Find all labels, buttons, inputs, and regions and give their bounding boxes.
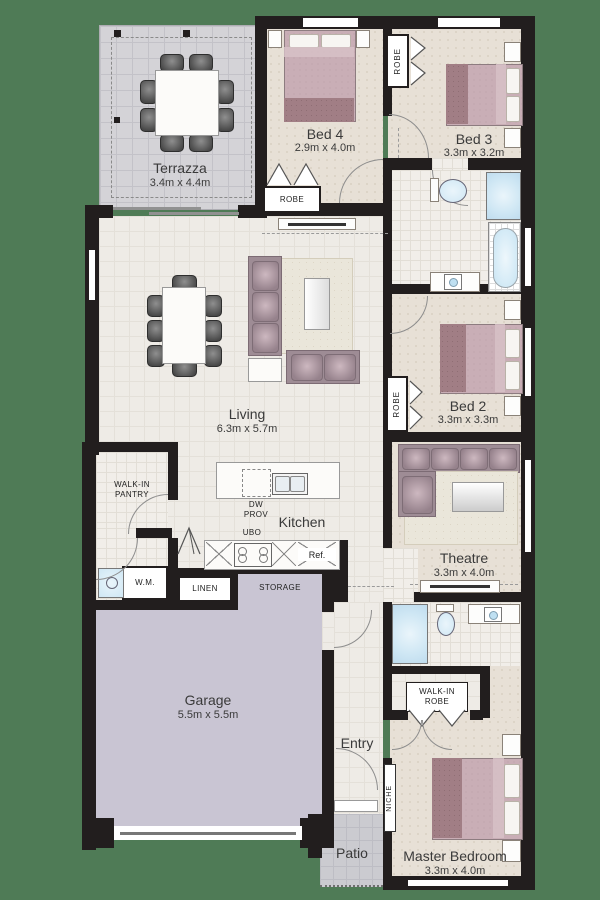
living-dims: 6.3m x 5.7m bbox=[217, 423, 278, 435]
window bbox=[408, 878, 508, 888]
tv bbox=[430, 585, 490, 588]
window bbox=[438, 16, 500, 29]
sofa bbox=[248, 256, 282, 356]
vanity-basin bbox=[484, 607, 502, 622]
window bbox=[523, 460, 533, 552]
wall bbox=[82, 445, 96, 850]
bed4-dims: 2.9m x 4.0m bbox=[295, 142, 356, 154]
sliding-door bbox=[149, 212, 239, 215]
sliding-door bbox=[113, 207, 201, 210]
front-door-threshold bbox=[334, 800, 378, 812]
window bbox=[87, 250, 97, 300]
master-nook bbox=[490, 666, 521, 718]
linen-cupboard: LINEN bbox=[178, 576, 232, 602]
toilet bbox=[439, 179, 467, 203]
bedside-table bbox=[356, 30, 370, 48]
master-bed bbox=[432, 758, 523, 840]
master-dims: 3.3m x 4.0m bbox=[425, 865, 486, 877]
bifold-door bbox=[266, 162, 320, 186]
bed3-bed bbox=[446, 64, 523, 126]
garage-label: Garage bbox=[185, 692, 232, 708]
robe-label: ROBE bbox=[393, 48, 403, 75]
wm-label: W.M. bbox=[135, 578, 155, 588]
storage-label: STORAGE bbox=[238, 583, 322, 593]
tv bbox=[288, 223, 346, 226]
bifold-door bbox=[408, 380, 424, 430]
bedside-table bbox=[504, 396, 521, 416]
bedside-table bbox=[504, 42, 521, 62]
niche-label: NICHE bbox=[385, 785, 395, 812]
chair bbox=[189, 134, 213, 152]
garage-door-line bbox=[120, 832, 296, 835]
toilet-cistern bbox=[430, 178, 439, 202]
cabinet bbox=[206, 542, 232, 566]
theatre-dims: 3.3m x 4.0m bbox=[434, 567, 495, 579]
kitchen-sink bbox=[272, 473, 308, 495]
floor-plan: ROBE ROBE ROBE W.M. LINEN STORAGE WALK-I… bbox=[0, 0, 600, 900]
bath-door-opening bbox=[432, 158, 468, 170]
terrazza-label: Terrazza bbox=[153, 160, 207, 176]
washing-machine: W.M. bbox=[122, 566, 168, 600]
coffee-table bbox=[304, 278, 330, 330]
wall bbox=[383, 666, 488, 674]
linen-label: LINEN bbox=[192, 584, 218, 594]
bed3-robe: ROBE bbox=[386, 34, 409, 88]
entry-label: Entry bbox=[341, 735, 374, 751]
dashed-line bbox=[262, 233, 388, 234]
vanity-basin bbox=[444, 274, 462, 290]
window bbox=[523, 328, 533, 396]
bathtub bbox=[488, 222, 521, 292]
wall bbox=[85, 205, 99, 455]
bed4-robe: ROBE bbox=[263, 186, 321, 213]
niche: NICHE bbox=[384, 764, 396, 832]
wall bbox=[383, 432, 392, 548]
theatre-sofa bbox=[398, 444, 520, 473]
dw-prov-label: DW PROV bbox=[240, 500, 272, 520]
wall bbox=[85, 205, 113, 218]
robe-label: ROBE bbox=[392, 391, 402, 418]
corridor-patch bbox=[383, 548, 418, 602]
wall bbox=[414, 592, 521, 602]
terrazza-post bbox=[183, 30, 190, 37]
chair bbox=[204, 295, 222, 317]
bed2-bed bbox=[440, 324, 523, 394]
window bbox=[523, 228, 533, 286]
wall bbox=[168, 442, 178, 500]
master-label: Master Bedroom bbox=[403, 848, 506, 864]
chair bbox=[160, 134, 184, 152]
garage-door-opening bbox=[322, 612, 334, 650]
patio-label: Patio bbox=[336, 845, 368, 861]
chair bbox=[204, 320, 222, 342]
dashed-line bbox=[398, 128, 399, 158]
living-label: Living bbox=[229, 406, 266, 422]
wir-label: WALK-IN ROBE bbox=[419, 687, 455, 707]
bed3-dims: 3.3m x 3.2m bbox=[444, 147, 505, 159]
bedside-table bbox=[268, 30, 282, 48]
ubo-label: UBO bbox=[238, 528, 266, 538]
terrazza-dims: 3.4m x 4.4m bbox=[150, 177, 211, 189]
dining-table bbox=[162, 287, 206, 364]
bed2-dims: 3.3m x 3.3m bbox=[438, 414, 499, 426]
fridge-label-bg: Ref. bbox=[298, 548, 336, 561]
wall bbox=[82, 442, 178, 452]
bifold-door bbox=[176, 526, 204, 556]
wall bbox=[82, 818, 114, 848]
toilet-cistern bbox=[436, 604, 454, 612]
robe-label: ROBE bbox=[280, 195, 304, 205]
bedside-table bbox=[502, 734, 521, 756]
dashed-line bbox=[348, 586, 394, 587]
bed4-bed bbox=[284, 30, 356, 122]
wall bbox=[383, 602, 392, 718]
theatre-sofa-corner bbox=[398, 471, 436, 517]
dishwasher-provision bbox=[242, 469, 271, 497]
wall bbox=[521, 16, 535, 890]
cooktop bbox=[234, 543, 272, 567]
bifold-door bbox=[409, 36, 427, 86]
shower bbox=[486, 172, 521, 220]
toilet bbox=[437, 612, 455, 636]
chair bbox=[204, 345, 222, 367]
terrazza-post bbox=[114, 30, 121, 37]
bed2-robe: ROBE bbox=[386, 376, 408, 432]
wall bbox=[322, 574, 348, 602]
sofa bbox=[286, 350, 360, 384]
ref-label: Ref. bbox=[309, 550, 326, 560]
garage-dims: 5.5m x 5.5m bbox=[178, 709, 239, 721]
kitchen-label: Kitchen bbox=[279, 514, 326, 530]
wall bbox=[388, 432, 521, 442]
shower bbox=[392, 604, 428, 664]
cabinet bbox=[272, 542, 296, 566]
wall bbox=[358, 16, 438, 29]
theatre-label: Theatre bbox=[440, 550, 488, 566]
side-table bbox=[248, 358, 282, 382]
bed4-label: Bed 4 bbox=[307, 126, 344, 142]
bedside-table bbox=[504, 128, 521, 148]
coffee-table bbox=[452, 482, 504, 512]
wall bbox=[308, 814, 322, 858]
bed3-label: Bed 3 bbox=[456, 131, 493, 147]
window bbox=[303, 16, 358, 29]
terrazza-post bbox=[114, 117, 120, 123]
bedside-table bbox=[504, 300, 521, 320]
outdoor-table bbox=[155, 70, 219, 136]
bed2-label: Bed 2 bbox=[450, 398, 487, 414]
